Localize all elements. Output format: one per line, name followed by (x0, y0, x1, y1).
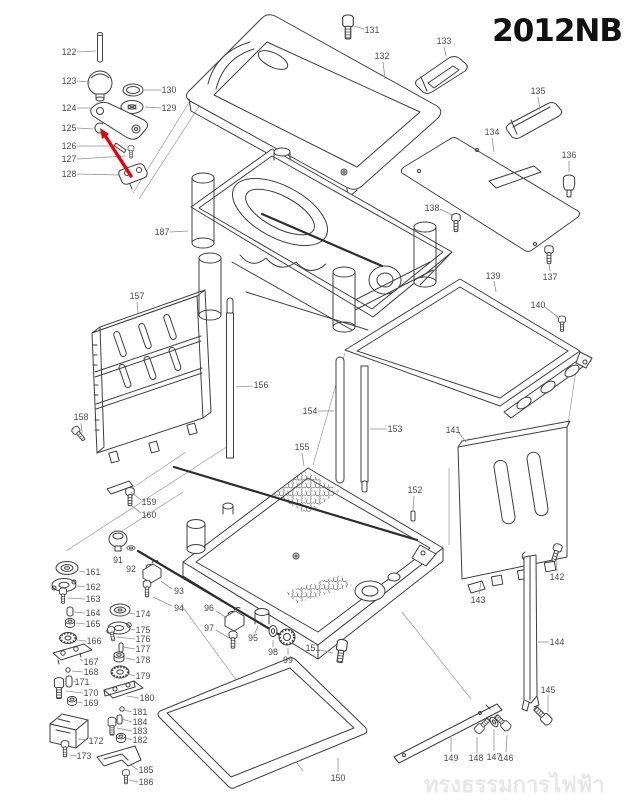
part-label-180: 180 (140, 693, 155, 703)
part-label-177: 177 (136, 644, 151, 654)
part-label-157: 157 (130, 291, 145, 301)
nut-part-178 (114, 652, 124, 662)
part-label-185: 185 (139, 765, 154, 775)
part-label-96: 96 (204, 603, 214, 613)
part-label-128: 128 (62, 169, 77, 179)
column-rod-part-154 (336, 357, 344, 483)
part-label-186: 186 (139, 777, 154, 787)
screw-part-94 (143, 581, 151, 597)
bracket-part-143 (468, 581, 485, 593)
pin-part-152 (411, 511, 415, 521)
part-label-176: 176 (136, 634, 151, 644)
part-label-93: 93 (174, 586, 184, 596)
part-label-182: 182 (133, 735, 148, 745)
part-label-129: 129 (162, 103, 177, 113)
part-label-143: 143 (471, 595, 486, 605)
part-label-134: 134 (485, 127, 500, 137)
pin-part-184 (117, 715, 122, 724)
screw-part-131 (343, 15, 354, 39)
bolt-part-170 (54, 678, 63, 699)
part-label-141: 141 (446, 425, 461, 435)
screw-part-163 (59, 588, 66, 603)
part-label-131: 131 (365, 25, 380, 35)
bottom-tray-part-150 (158, 658, 367, 789)
part-label-173: 173 (77, 751, 92, 761)
pin-part-164 (67, 607, 73, 616)
part-label-124: 124 (62, 103, 77, 113)
part-label-135: 135 (531, 86, 546, 96)
part-label-164: 164 (86, 608, 101, 618)
part-label-154: 154 (303, 406, 318, 416)
nut-part-182 (117, 734, 126, 743)
part-label-147: 147 (487, 752, 502, 762)
side-panel-part-157 (92, 290, 211, 463)
part-label-144: 144 (550, 637, 565, 647)
watermark-text: ทรงธรรมการไฟฟ้า (424, 767, 629, 802)
part-label-171: 171 (75, 677, 90, 687)
screw-part-137 (545, 246, 553, 264)
part-label-152: 152 (408, 485, 423, 495)
part-label-126: 126 (62, 141, 77, 151)
part-label-165: 165 (86, 619, 101, 629)
part-label-178: 178 (136, 655, 151, 665)
part-label-91: 91 (113, 555, 123, 565)
part-label-133: 133 (437, 36, 452, 46)
part-label-97: 97 (204, 623, 214, 633)
base-housing (183, 468, 443, 659)
part-label-161: 161 (86, 567, 101, 577)
screw-part-183 (108, 717, 116, 735)
bearing-part-161 (56, 562, 78, 575)
screw-part-97 (229, 631, 237, 648)
part-label-174: 174 (136, 609, 151, 619)
part-label-163: 163 (86, 594, 101, 604)
part-label-150: 150 (331, 773, 346, 783)
part-label-136: 136 (562, 150, 577, 160)
part-label-94: 94 (174, 603, 184, 613)
pin-part-177 (119, 643, 123, 652)
part-label-172: 172 (89, 736, 104, 746)
part-label-138: 138 (425, 203, 440, 213)
part-label-181: 181 (133, 707, 148, 717)
side-panel-part-141 (458, 421, 570, 593)
depth-knob-assembly (88, 33, 148, 190)
bracket-part-180 (104, 681, 143, 698)
part-label-170: 170 (84, 688, 99, 698)
threaded-rod-part-153 (361, 366, 368, 492)
screw-part-160 (126, 488, 134, 506)
part-label-156: 156 (254, 380, 269, 390)
screw-part-186 (123, 769, 130, 783)
part-label-139: 139 (486, 271, 501, 281)
washer-part-98 (269, 626, 277, 637)
handle-part-135 (506, 103, 561, 139)
part-label-151: 151 (306, 643, 321, 653)
part-label-179: 179 (136, 671, 151, 681)
part-label-98: 98 (268, 647, 278, 657)
parts-diagram-drawing: 1221231301291241251261271281311321331341… (0, 0, 634, 812)
part-label-155: 155 (295, 442, 310, 452)
part-label-158: 158 (74, 412, 89, 422)
threaded-rod-part-156 (227, 298, 234, 458)
part-label-99: 99 (283, 655, 293, 665)
part-label-168: 168 (84, 667, 99, 677)
screw-part-140 (558, 316, 565, 331)
screw-part-138 (452, 214, 460, 232)
part-label-92: 92 (126, 564, 136, 574)
part-label-153: 153 (388, 424, 403, 434)
part-label-162: 162 (86, 582, 101, 592)
knob-part-136 (563, 175, 575, 197)
nut-part-169 (68, 697, 77, 706)
part-label-159: 159 (142, 497, 157, 507)
part-label-123: 123 (62, 76, 77, 86)
part-label-167: 167 (84, 657, 99, 667)
part-label-127: 127 (62, 154, 77, 164)
part-label-160: 160 (142, 510, 157, 520)
part-label-132: 132 (375, 51, 390, 61)
nut-part-165 (66, 619, 75, 628)
model-number-title: 2012NB (492, 13, 622, 49)
part-label-169: 169 (84, 698, 99, 708)
part-label-122: 122 (62, 47, 77, 57)
rear-panel-part-134 (401, 138, 579, 252)
part-label-95: 95 (248, 633, 258, 643)
screw-part-158 (71, 425, 87, 442)
sleeve-part-171 (66, 676, 72, 687)
part-label-142: 142 (550, 572, 565, 582)
bolt-part-145 (532, 705, 553, 726)
part-label-137: 137 (543, 272, 558, 282)
part-label-130: 130 (162, 85, 177, 95)
ring-part-181 (120, 707, 124, 711)
handle-part-133 (416, 57, 468, 94)
exploded-parts-diagram-page: 1221231301291241251261271281311321331341… (0, 0, 634, 812)
part-label-149: 149 (444, 753, 459, 763)
part-label-166: 166 (87, 636, 102, 646)
channel-part-185 (97, 746, 141, 766)
washer-part-92 (127, 546, 135, 551)
part-label-140: 140 (531, 300, 546, 310)
screw-part-173 (61, 741, 69, 757)
part-label-148: 148 (469, 753, 484, 763)
strip-part-144 (522, 552, 539, 711)
part-label-187: 187 (155, 227, 170, 237)
part-label-125: 125 (62, 123, 77, 133)
bearing-part-174 (110, 604, 130, 616)
ring-part-168 (66, 668, 70, 672)
part-label-145: 145 (541, 685, 556, 695)
